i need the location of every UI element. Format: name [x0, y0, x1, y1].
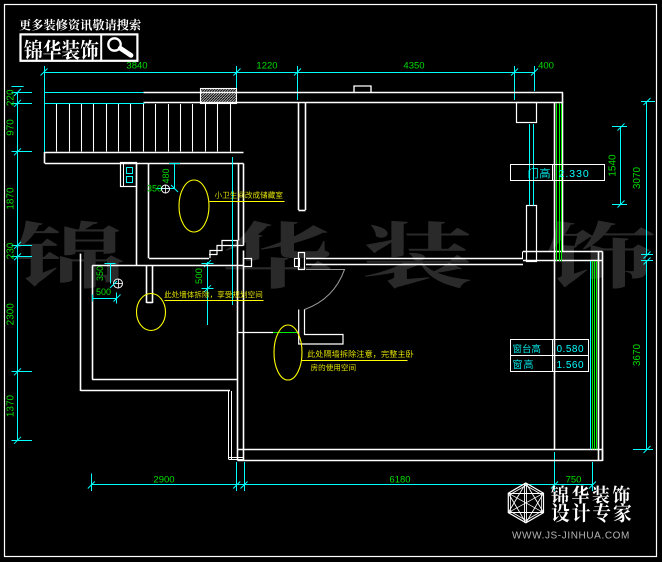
- svg-text:3840: 3840: [126, 61, 147, 72]
- svg-text:750: 750: [566, 475, 582, 486]
- svg-text:500: 500: [194, 268, 205, 284]
- svg-text:1370: 1370: [6, 394, 17, 417]
- svg-text:WWW.JS-JINHUA.COM: WWW.JS-JINHUA.COM: [512, 531, 630, 542]
- svg-text:1.560: 1.560: [557, 360, 585, 371]
- svg-text:1870: 1870: [6, 187, 17, 210]
- svg-text:400: 400: [538, 61, 554, 72]
- svg-text:3070: 3070: [632, 166, 643, 189]
- svg-text:970: 970: [6, 119, 17, 136]
- svg-text:480: 480: [161, 168, 171, 183]
- svg-text:350: 350: [95, 266, 105, 281]
- svg-text:2300: 2300: [6, 303, 17, 326]
- svg-text:6180: 6180: [389, 475, 410, 486]
- svg-text:350: 350: [147, 184, 162, 194]
- svg-text:3670: 3670: [632, 343, 643, 366]
- svg-text:1540: 1540: [608, 154, 619, 177]
- svg-text:2900: 2900: [153, 475, 174, 486]
- svg-text:4350: 4350: [403, 61, 424, 72]
- svg-text:230: 230: [6, 242, 17, 259]
- svg-text:220: 220: [6, 89, 17, 106]
- svg-text:500: 500: [96, 287, 111, 297]
- svg-text:2.330: 2.330: [559, 168, 590, 180]
- svg-text:0.580: 0.580: [557, 344, 585, 355]
- svg-text:1220: 1220: [256, 61, 277, 72]
